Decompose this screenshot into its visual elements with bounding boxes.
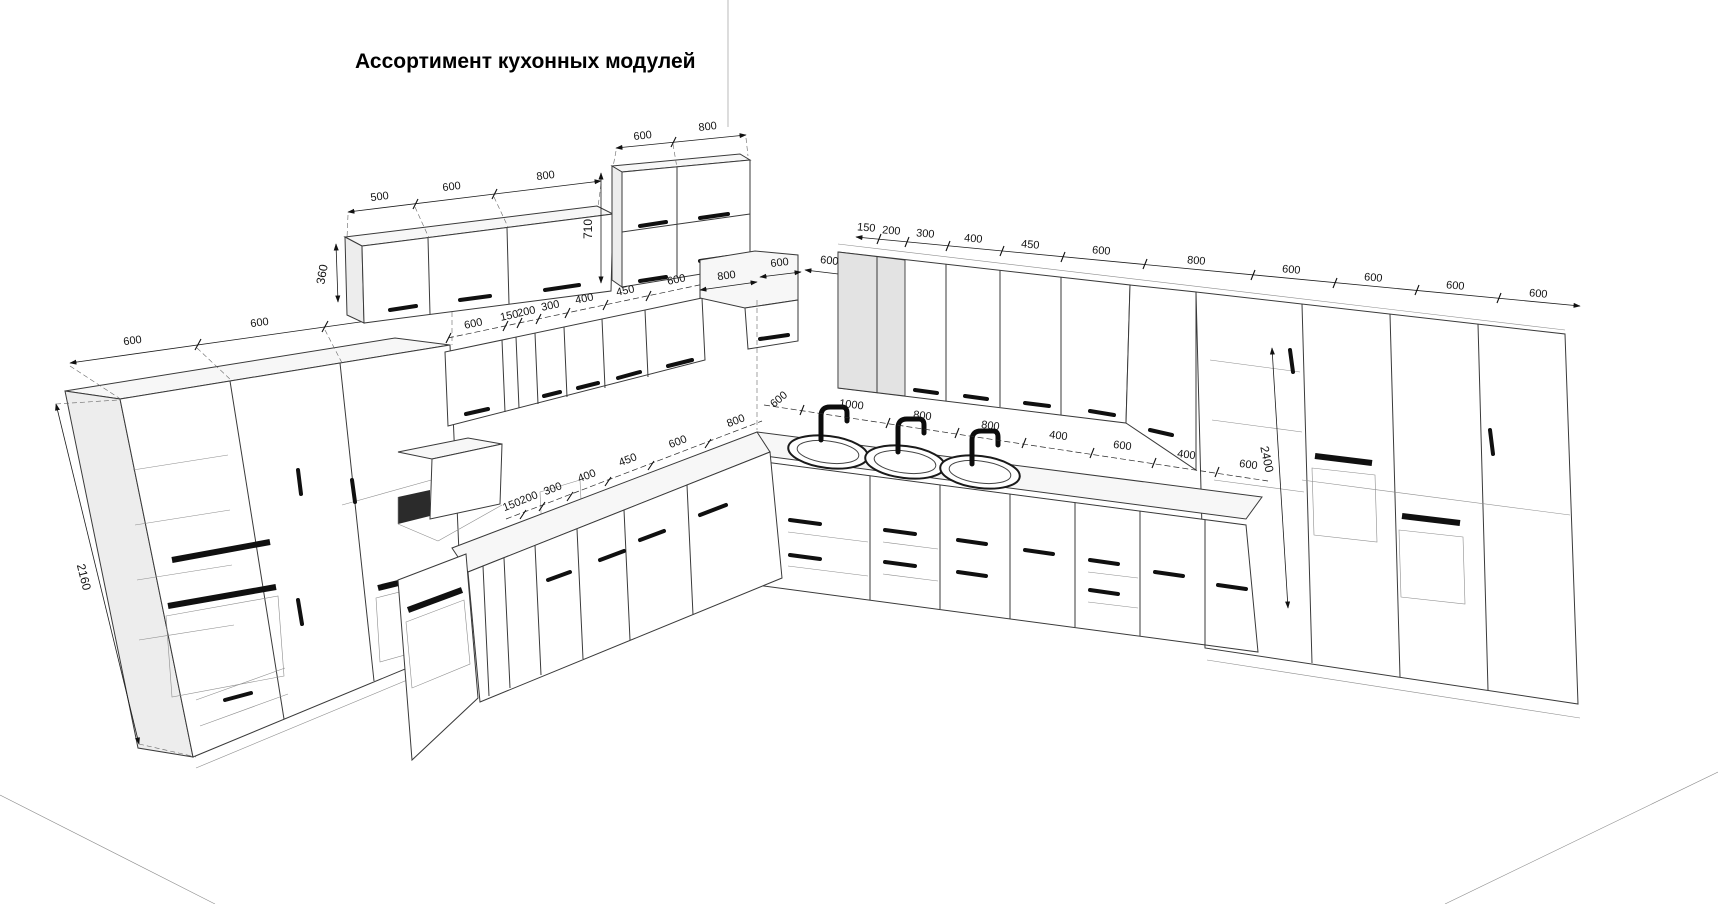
dim-label: 500: [370, 190, 390, 204]
dim-label: 600: [442, 180, 462, 194]
dim-label: 710: [581, 219, 595, 239]
dim-label: 450: [617, 451, 638, 469]
dim-label: 400: [1177, 448, 1197, 462]
dim-label: 600: [667, 433, 688, 451]
dim-label: 1000: [838, 398, 864, 413]
dim-label: 600: [1282, 263, 1301, 277]
dim-label: 600: [1446, 279, 1465, 293]
cabinet-side-face: [612, 166, 622, 287]
dim-label: 800: [717, 269, 737, 283]
dim-label: 800: [913, 409, 933, 423]
dim-label: 600: [770, 256, 790, 270]
dim-label: 360: [313, 263, 330, 285]
dim-label: 800: [981, 419, 1001, 433]
dim-label: 600: [820, 254, 840, 268]
cabinet-angled-front: [745, 300, 798, 349]
dim-label: 300: [916, 227, 935, 241]
dim-label: 150: [857, 221, 876, 235]
floor-line-left: [0, 795, 215, 904]
corner-wall-cabinet: 800 600 600: [700, 251, 855, 349]
dim-label: 200: [516, 304, 536, 320]
dim-label: 800: [1187, 254, 1206, 268]
dim-label: 400: [576, 467, 597, 485]
dim-label: 600: [463, 316, 483, 332]
dim-label: 450: [615, 283, 635, 299]
dim-label: 600: [1529, 287, 1548, 301]
dim-label: 600: [1092, 244, 1111, 258]
floor-line-right: [1445, 772, 1718, 904]
dim-label: 600: [1364, 271, 1383, 285]
dim-label: 600: [768, 389, 790, 410]
dim-label: 300: [540, 298, 560, 314]
dim-label: 300: [542, 480, 563, 498]
page-title: Ассортимент кухонных модулей: [355, 50, 696, 73]
dim-label: 450: [1021, 238, 1040, 252]
dim-label: 600: [1239, 458, 1259, 472]
dim-label: 600: [633, 129, 653, 143]
filler-panels: [838, 252, 905, 396]
dim-label: 800: [698, 120, 718, 134]
left-tall-cabinets-group: 600 600 600 2160: [56, 298, 465, 768]
dimension-line: [336, 244, 338, 302]
dim-label: 600: [1113, 439, 1133, 453]
dim-label: 800: [536, 169, 556, 183]
dim-label: 600: [666, 272, 686, 288]
oven-cabinet-front: [398, 554, 478, 760]
dim-label: 200: [518, 489, 539, 507]
cabinet-side-face: [345, 237, 364, 323]
dim-label: 600: [123, 334, 143, 348]
dim-label: 2160: [74, 562, 94, 592]
drawing-canvas: Ассортимент кухонных модулей 600 600 600…: [0, 0, 1718, 904]
wall-cabinet-set-a: 500 600 800 360: [313, 169, 613, 323]
corner-transition-front: [1126, 285, 1196, 470]
dim-label: 400: [574, 291, 594, 307]
dim-label: 200: [882, 224, 901, 238]
dim-label: 400: [1049, 429, 1069, 443]
dim-label: 600: [250, 316, 270, 330]
dim-label: 400: [964, 232, 983, 246]
dim-label: 800: [725, 412, 746, 430]
kitchen-modules-drawing: Ассортимент кухонных модулей 600 600 600…: [0, 0, 1718, 904]
cabinet-front: [445, 298, 705, 426]
